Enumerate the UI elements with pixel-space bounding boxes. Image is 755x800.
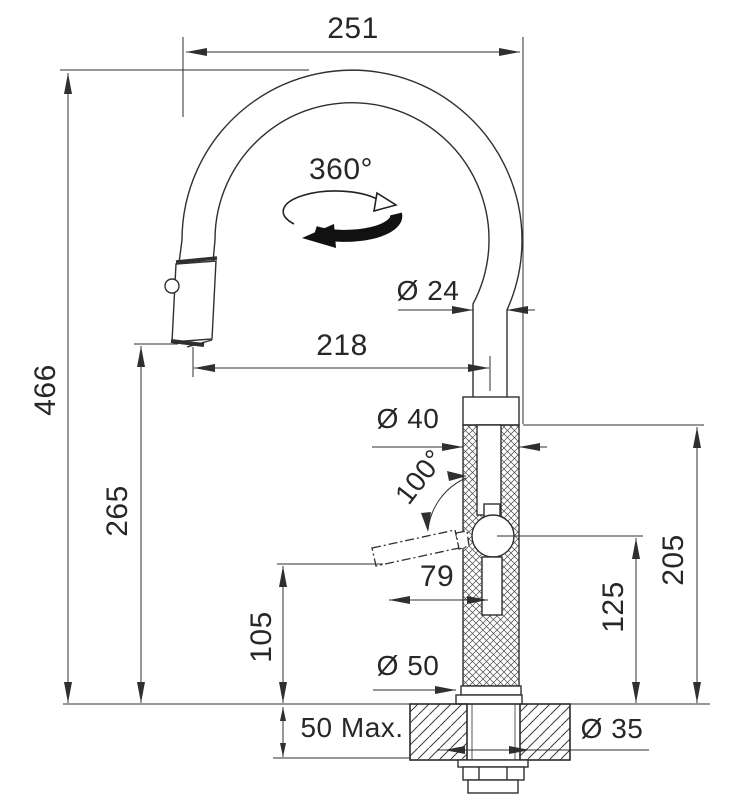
dim-label-lever-pivot-height: 125 (599, 581, 629, 633)
dim-label-mounting-hole-diameter: Ø 35 (581, 715, 644, 743)
spray-head (165, 258, 217, 347)
dim-label-spout-tube-diameter: Ø 24 (397, 277, 460, 305)
technical-drawing-page: 251 360° Ø 24 218 466 Ø 40 100° 265 79 2… (0, 0, 755, 800)
dim-label-spout-width: 251 (327, 14, 379, 44)
lever-angle-arc (428, 478, 466, 530)
mounting-nut (458, 760, 528, 793)
dim-label-counter-max-thickness: 50 Max. (300, 714, 403, 742)
dim-label-swivel-angle: 360° (309, 155, 373, 185)
dim-label-overall-height: 466 (31, 364, 61, 416)
dim-label-body-diameter: Ø 40 (377, 405, 440, 433)
base-flange (461, 686, 521, 695)
faucet-body (456, 397, 522, 704)
dim-label-lever-clearance-height: 105 (247, 611, 277, 663)
dim-label-lever-length: 79 (420, 562, 454, 592)
swivel-360-icon (283, 191, 396, 248)
dim-label-base-diameter: Ø 50 (377, 652, 440, 680)
dim-label-spout-reach: 218 (316, 331, 368, 361)
spray-toggle-button (165, 279, 179, 293)
dim-label-body-height: 205 (659, 534, 689, 586)
dim-label-spray-head-height: 265 (103, 485, 133, 537)
